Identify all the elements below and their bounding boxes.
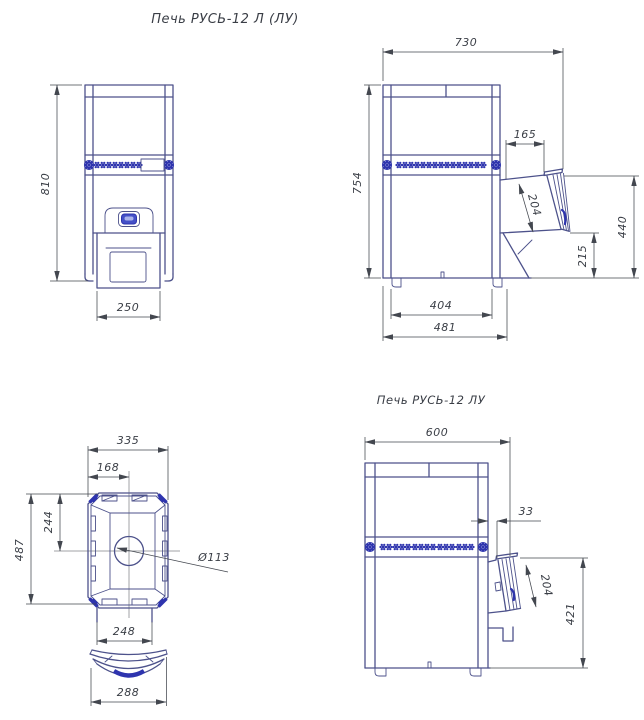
label-chimney-diameter: Ø113	[197, 551, 230, 564]
tunnel-and-door-top	[90, 608, 167, 676]
dim-top-width: 335	[117, 434, 140, 447]
dim-front-width: 250	[117, 301, 140, 314]
dim-top-center-offset: 168	[97, 461, 120, 474]
dim-top-door-width: 248	[113, 625, 136, 638]
side-view: 730 754 165 204 440 215 404 481	[351, 36, 639, 341]
dim-top-door-frame: 288	[117, 686, 140, 699]
front-dimensions: 810 250	[39, 85, 160, 321]
dim-top-front-to-center: 244	[42, 511, 55, 534]
dim-side-base-inner: 404	[430, 299, 453, 312]
ornament-band-front	[84, 159, 173, 171]
dim-top-depth: 487	[13, 539, 26, 562]
dim-lu-channel-height: 421	[564, 603, 577, 626]
ornament-band-lu	[365, 542, 487, 551]
dim-front-height: 810	[39, 173, 52, 196]
dim-side-channel-offset: 165	[514, 128, 537, 141]
front-view: 810 250	[39, 85, 174, 321]
dim-side-channel-height: 440	[616, 216, 629, 239]
firebox-front	[106, 248, 151, 282]
door-latch	[495, 582, 501, 591]
door-handle-top	[114, 671, 144, 676]
dim-lu-door-face: 204	[538, 573, 555, 598]
fuel-channel-side	[500, 169, 570, 278]
ornament-band-side	[382, 160, 500, 169]
drawing-page: Печь РУСЬ-12 Л (ЛУ)	[0, 0, 644, 720]
fuel-channel-lu	[488, 553, 521, 641]
dim-side-base-outer: 481	[434, 321, 457, 334]
top-view: 335 168 244 487 Ø113 248 288	[13, 434, 230, 706]
side-lu-title: Печь РУСЬ-12 ЛУ	[377, 393, 486, 407]
technical-drawing: Печь РУСЬ-12 Л (ЛУ)	[0, 0, 644, 720]
side-dimensions: 730 754 165 204 440 215 404 481	[351, 36, 639, 341]
nameplate	[141, 159, 164, 171]
drawing-title: Печь РУСЬ-12 Л (ЛУ)	[151, 12, 299, 27]
top-dimensions: 335 168 244 487 Ø113 248 288	[13, 434, 230, 706]
stove-door-front	[105, 208, 153, 233]
side-lu-view: Печь РУСЬ-12 ЛУ	[365, 393, 588, 676]
dim-side-depth: 730	[455, 36, 478, 49]
dim-lu-depth: 600	[426, 426, 449, 439]
dim-side-base-height: 215	[576, 245, 589, 268]
dim-lu-channel-offset: 33	[519, 505, 534, 518]
dim-side-height: 754	[351, 172, 364, 195]
